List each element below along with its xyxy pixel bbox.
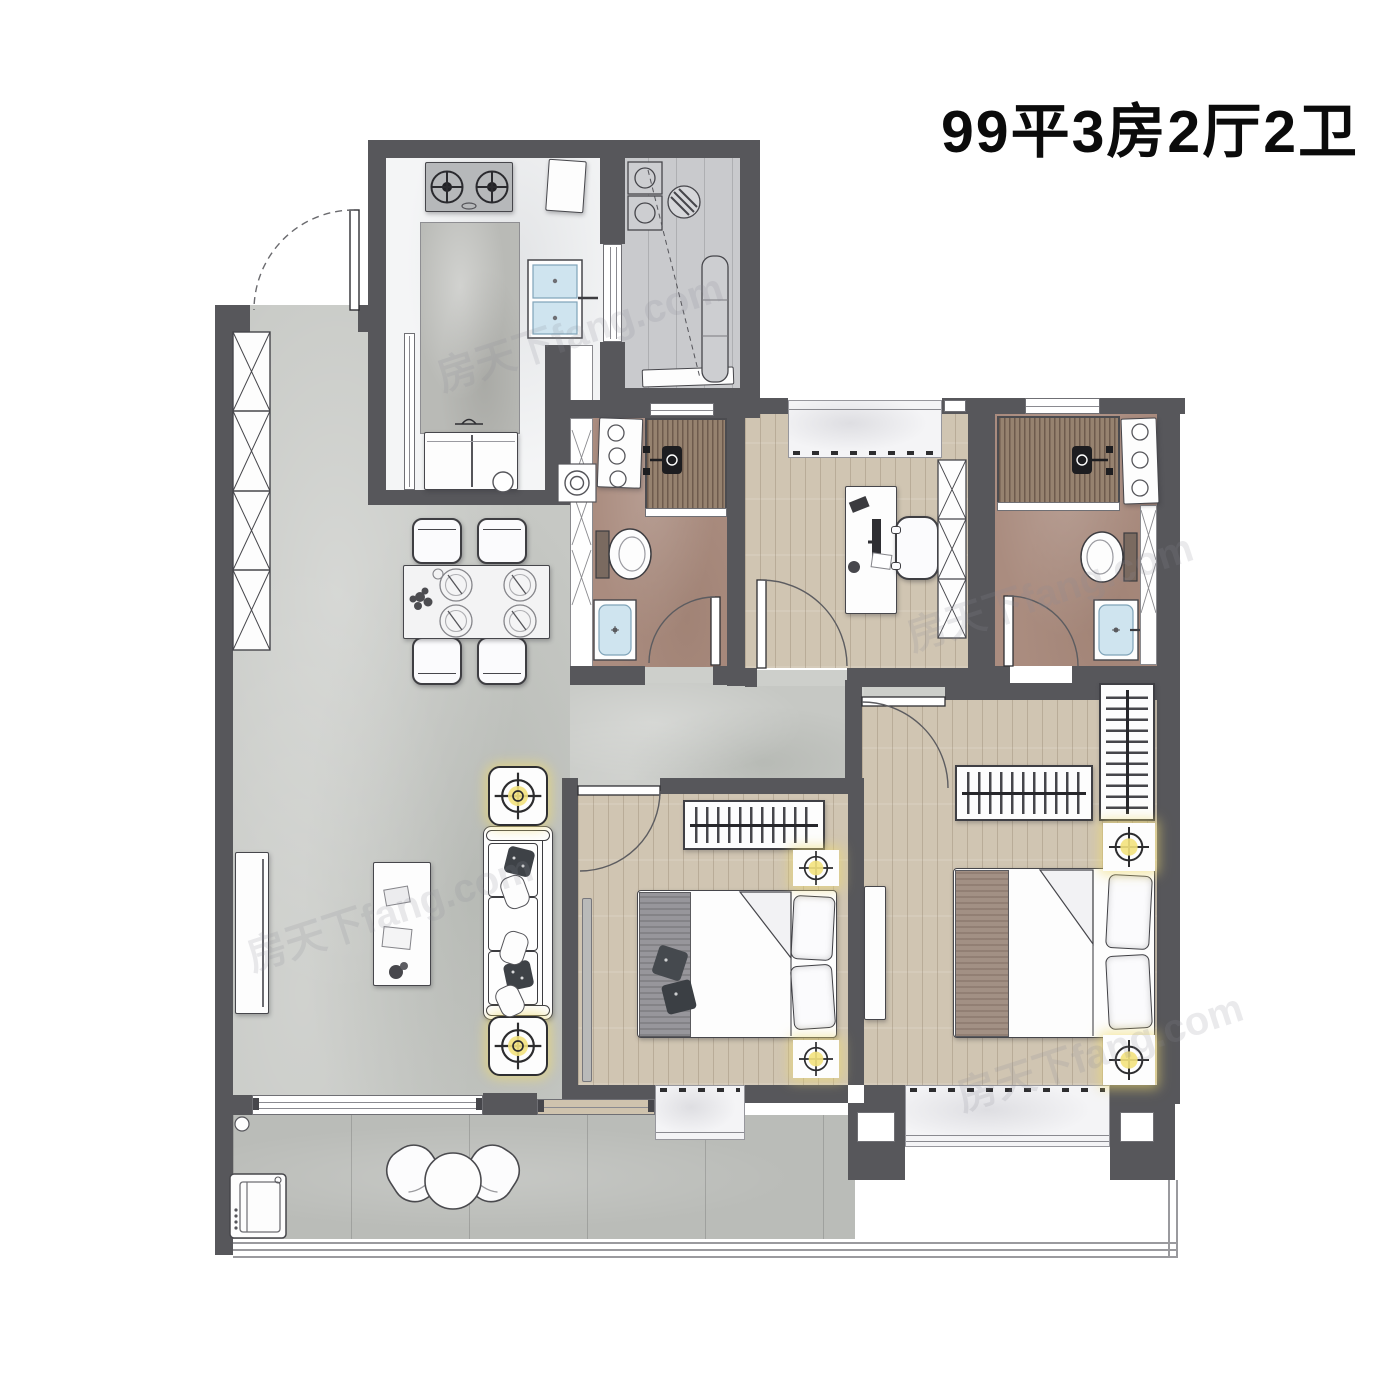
wall — [740, 140, 760, 390]
ceiling-lamp — [793, 850, 839, 886]
floor-lamp — [488, 1016, 548, 1076]
utility-platform-floor — [620, 158, 740, 390]
plan-title: 99平3房2厅2卫 — [930, 84, 1370, 169]
guest-bath-window — [650, 403, 714, 416]
master-door-threshold — [864, 685, 945, 699]
bedroom2-balcony-sill — [537, 1099, 655, 1115]
wall — [968, 414, 995, 668]
guest-shower-area — [645, 418, 727, 512]
wall — [483, 1093, 537, 1115]
wall — [713, 666, 745, 685]
wall — [758, 398, 788, 414]
wall — [1110, 1085, 1175, 1103]
wall — [600, 158, 625, 244]
wall — [845, 680, 862, 794]
master-wardrobe-side — [1099, 683, 1155, 821]
master-bath-window — [1025, 398, 1100, 414]
wall — [848, 794, 864, 1085]
dining-chair — [412, 518, 462, 564]
dining-table — [403, 565, 550, 639]
balcony-side-window-left — [857, 1112, 895, 1142]
balcony-railing — [233, 1242, 1178, 1244]
wall — [562, 1085, 655, 1099]
lamp-icon — [493, 771, 543, 821]
master-bed — [953, 868, 1155, 1038]
dining-chair — [477, 637, 527, 685]
lamp-icon — [493, 1021, 543, 1071]
vent-strip-guest-bath — [570, 418, 593, 668]
master-bay-window — [905, 1085, 1110, 1147]
balcony-railing — [1168, 1180, 1170, 1258]
guest-bath-vanity — [597, 417, 643, 488]
ceiling-lamp — [793, 1040, 839, 1078]
master-dresser — [864, 886, 886, 1020]
wall — [215, 332, 233, 1115]
wall — [727, 402, 745, 686]
wall — [545, 345, 570, 505]
lamp-icon — [1109, 827, 1149, 867]
sofa — [483, 826, 553, 1020]
wall — [745, 668, 757, 687]
lamp-icon — [1109, 1040, 1149, 1080]
wall — [570, 400, 605, 418]
ceiling-lamp — [1103, 1035, 1155, 1085]
bedroom2-side-shelf — [582, 898, 592, 1082]
master-shower-ledge — [997, 502, 1120, 511]
kitchen-pass-window — [603, 244, 622, 342]
master-shower-area — [997, 416, 1120, 506]
master-bath-vanity — [1121, 417, 1160, 504]
wall — [215, 1095, 252, 1115]
floor-plan: 房天下fang.com 房天下fang.com 房天下fang.com 房天下f… — [0, 0, 1400, 1400]
wall — [745, 1085, 848, 1103]
pipe-shaft — [570, 345, 593, 405]
ceiling-lamp — [1103, 823, 1155, 871]
entry-door — [254, 210, 359, 310]
wall — [1157, 414, 1180, 1104]
wall — [562, 794, 578, 1085]
living-balcony-slider — [252, 1095, 483, 1115]
bedroom2-wardrobe — [683, 800, 825, 850]
study-door-threshold — [757, 670, 847, 686]
tv-cabinet — [235, 852, 269, 1014]
guest-shower-ledge — [645, 508, 727, 517]
wall — [570, 666, 645, 685]
dining-chair — [477, 518, 527, 564]
wall — [386, 490, 551, 505]
lamp-icon — [799, 1042, 833, 1076]
floor-lamp — [488, 766, 548, 826]
study-side-window — [944, 400, 966, 412]
guest-bath-door-threshold — [645, 667, 713, 683]
study-chair — [895, 516, 939, 580]
balcony-railing — [1176, 1180, 1178, 1258]
lamp-icon — [799, 851, 833, 885]
dining-chair — [412, 637, 462, 685]
balcony-railing — [233, 1256, 1178, 1258]
wall — [215, 1115, 233, 1255]
fridge — [424, 432, 518, 490]
range-hood — [545, 159, 587, 214]
kitchen-sliding-door — [404, 333, 415, 490]
wall — [368, 140, 760, 158]
bedroom2-bed — [637, 890, 837, 1038]
gas-stove — [425, 162, 513, 212]
master-wardrobe-top — [955, 765, 1093, 821]
utility-shelf — [642, 366, 735, 387]
wall — [562, 778, 578, 794]
wall — [1100, 398, 1185, 414]
study-bay-window — [788, 400, 942, 458]
coffee-table — [373, 862, 431, 986]
bedroom2-bay-window — [655, 1085, 745, 1140]
vent-strip-master-bath — [1140, 505, 1157, 665]
wall — [660, 778, 864, 794]
balcony-side-window-right — [1120, 1112, 1154, 1142]
balcony-railing — [233, 1249, 1178, 1251]
wall — [215, 305, 250, 332]
kitchen-counter — [420, 222, 520, 434]
wall — [358, 305, 386, 332]
bedroom2-door-threshold — [578, 780, 660, 794]
balcony-floor — [233, 1115, 855, 1239]
wall — [864, 1085, 905, 1103]
study-desk — [845, 486, 897, 614]
